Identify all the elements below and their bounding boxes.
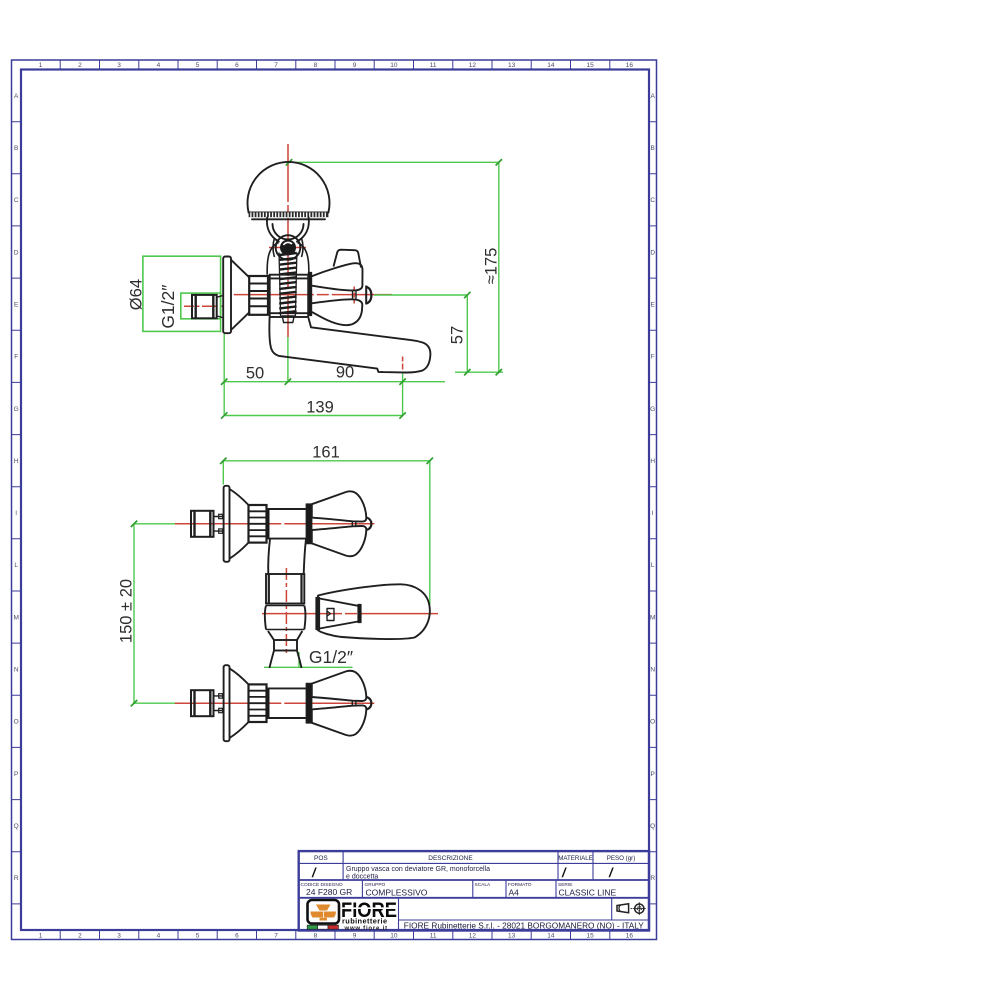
svg-text:Q: Q [14,823,19,830]
svg-text:2: 2 [78,62,82,69]
svg-text:13: 13 [508,62,516,69]
svg-text:5: 5 [196,932,200,939]
svg-text:A: A [14,93,19,100]
svg-text:161: 161 [312,444,340,462]
svg-text:8: 8 [314,932,318,939]
svg-text:11: 11 [430,62,437,69]
svg-text:M: M [650,614,655,621]
svg-text:24 F280 GR: 24 F280 GR [306,887,352,897]
svg-text:I: I [652,510,654,517]
svg-text:8: 8 [314,62,318,69]
svg-text:16: 16 [626,62,634,69]
svg-text:12: 12 [469,932,477,939]
svg-text:2: 2 [78,932,82,939]
svg-text:L: L [14,562,18,569]
svg-text:C: C [650,197,655,204]
svg-text:4: 4 [157,62,161,69]
svg-text:5: 5 [196,62,200,69]
svg-text:N: N [14,667,19,674]
svg-text:H: H [14,458,19,465]
svg-text:rubinetterie: rubinetterie [342,916,387,925]
svg-text:MATERIALE: MATERIALE [558,855,593,862]
svg-text:PESO (gr): PESO (gr) [607,855,636,862]
svg-text:D: D [650,249,655,256]
svg-text:14: 14 [547,62,555,69]
svg-text:C: C [14,197,19,204]
svg-text:7: 7 [274,932,278,939]
svg-text:DESCRIZIONE: DESCRIZIONE [428,855,473,862]
svg-text:R: R [650,875,655,882]
svg-text:11: 11 [430,932,437,939]
svg-text:9: 9 [353,932,357,939]
svg-text:139: 139 [306,398,334,416]
svg-text:3: 3 [117,932,121,939]
svg-text:G: G [14,406,19,413]
svg-text:150 ± 20: 150 ± 20 [118,579,136,643]
svg-text:16: 16 [626,932,634,939]
svg-text:CLASSIC LINE: CLASSIC LINE [559,887,617,897]
svg-text:O: O [650,719,655,726]
svg-text:14: 14 [547,932,555,939]
svg-text:10: 10 [390,932,398,939]
svg-text:7: 7 [274,62,278,69]
svg-text:P: P [651,771,655,778]
svg-text:SCALA: SCALA [475,882,492,888]
svg-text:F: F [651,354,655,361]
svg-text:B: B [14,145,18,152]
svg-text:P: P [14,771,18,778]
svg-text:G1/2″: G1/2″ [309,647,353,667]
svg-text:6: 6 [235,932,239,939]
svg-text:F: F [14,354,18,361]
svg-text:Gruppo vasca con deviatore GR,: Gruppo vasca con deviatore GR, monoforce… [346,866,490,873]
svg-text:O: O [14,719,19,726]
svg-text:R: R [14,875,19,882]
svg-text:A4: A4 [509,887,520,897]
svg-text:≈175: ≈175 [482,248,500,285]
svg-text:POS: POS [314,855,328,862]
svg-text:e doccetta: e doccetta [346,873,378,880]
svg-text:9: 9 [353,62,357,69]
svg-text:G1/2″: G1/2″ [158,285,178,329]
svg-text:A: A [651,93,656,100]
svg-text:6: 6 [235,62,239,69]
svg-text:G: G [650,406,655,413]
svg-text:Ø64: Ø64 [128,279,146,310]
svg-text:1: 1 [39,62,43,69]
svg-text:10: 10 [390,62,398,69]
svg-text:M: M [13,614,18,621]
svg-text:12: 12 [469,62,477,69]
svg-text:50: 50 [246,364,264,382]
svg-text:www.fiore.it: www.fiore.it [344,926,388,932]
svg-text:I: I [15,510,17,517]
svg-text:4: 4 [157,932,161,939]
svg-text:FIORE Rubinetterie S.r.l. - 28: FIORE Rubinetterie S.r.l. - 28021 BORGOM… [404,920,644,930]
svg-text:B: B [651,145,655,152]
svg-text:57: 57 [449,326,467,344]
svg-text:N: N [650,667,655,674]
svg-text:COMPLESSIVO: COMPLESSIVO [366,887,428,897]
svg-text:E: E [651,302,656,309]
svg-text:3: 3 [117,62,121,69]
svg-text:E: E [14,302,19,309]
svg-text:H: H [650,458,655,465]
svg-text:1: 1 [39,932,43,939]
svg-text:Q: Q [650,823,655,830]
svg-text:D: D [14,249,19,256]
svg-text:L: L [651,562,655,569]
svg-text:15: 15 [586,932,594,939]
svg-text:15: 15 [586,62,594,69]
svg-text:13: 13 [508,932,516,939]
